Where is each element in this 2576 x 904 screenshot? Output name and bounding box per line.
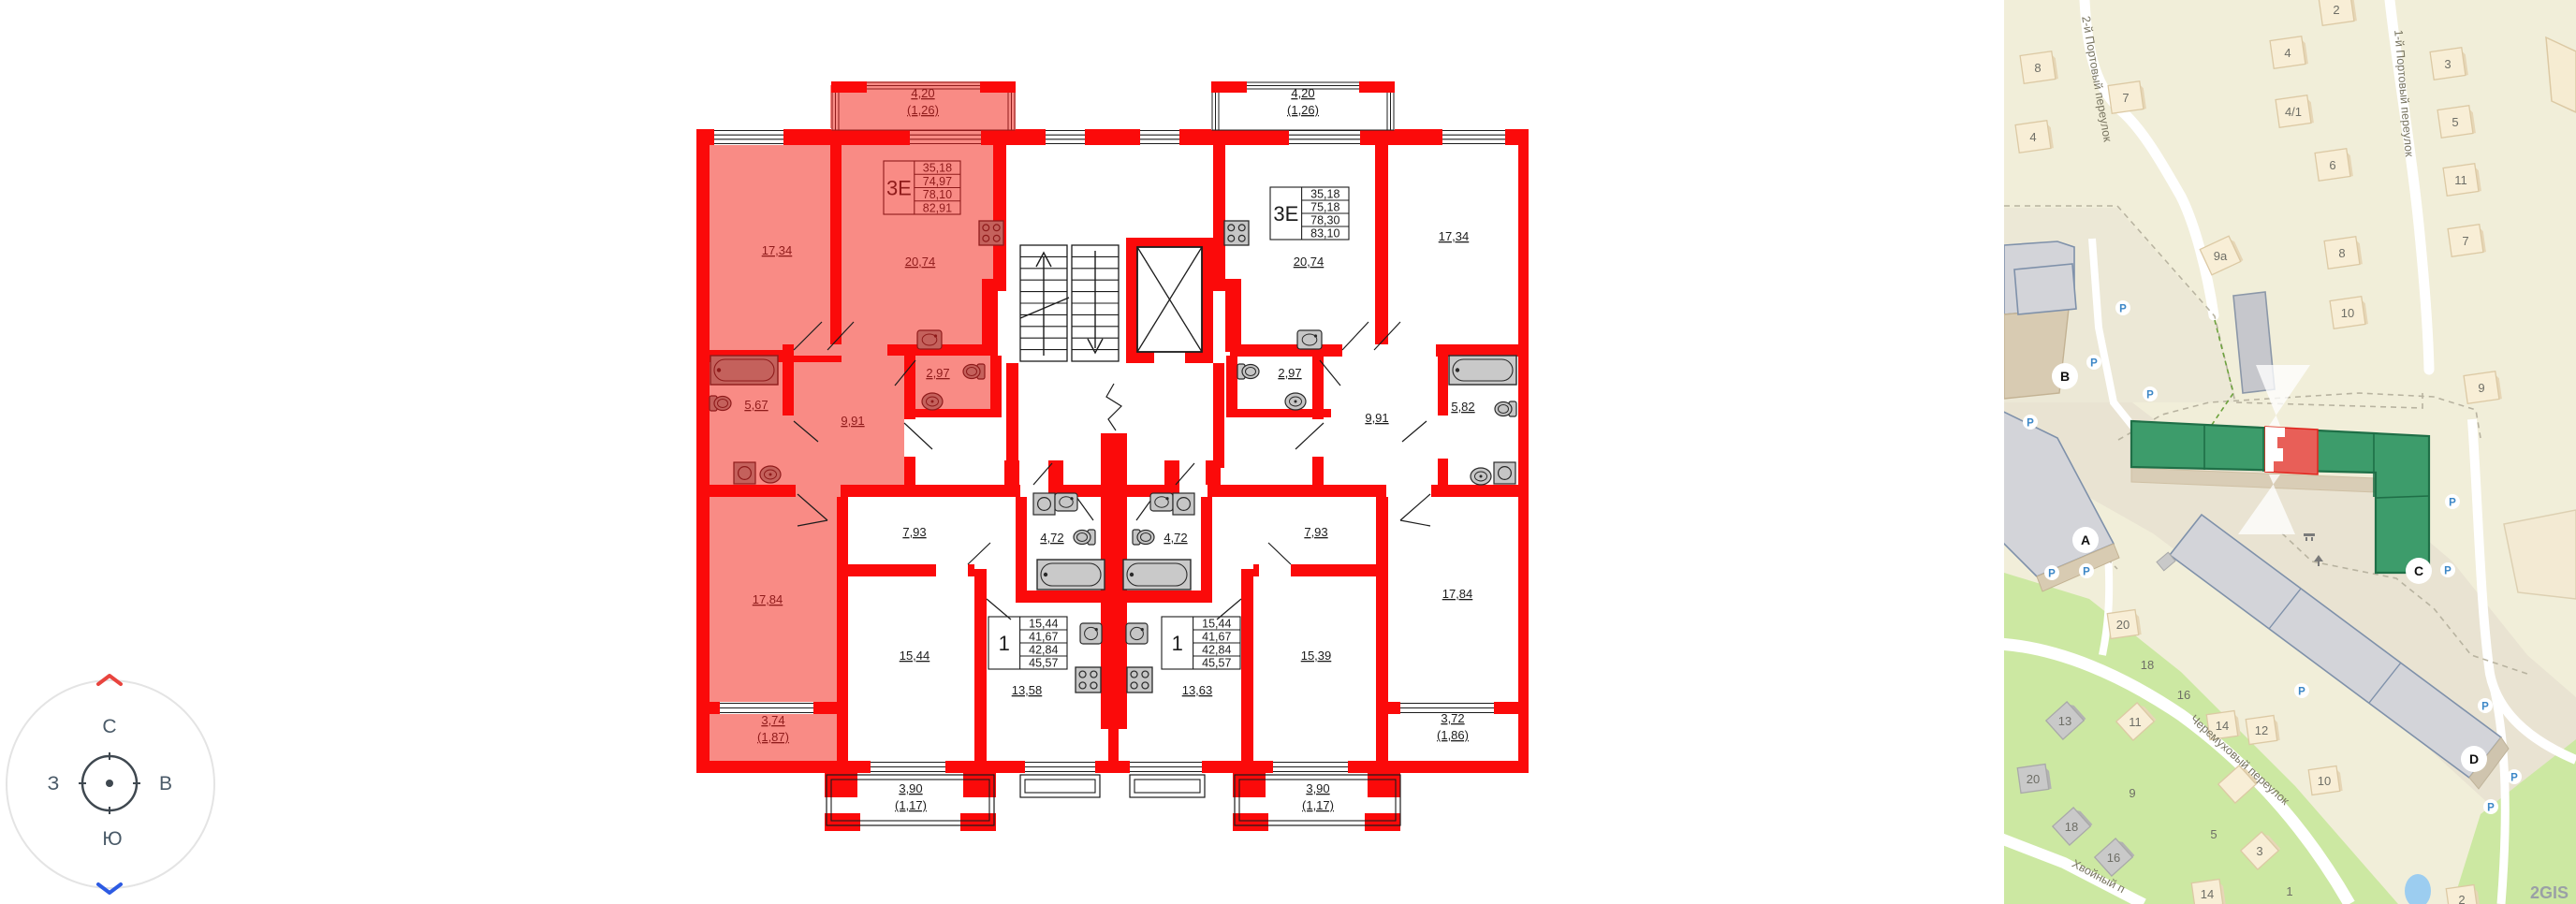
svg-text:D: D (2469, 751, 2479, 766)
svg-text:9: 9 (2478, 381, 2484, 395)
svg-text:82,91: 82,91 (923, 201, 952, 214)
svg-text:P: P (2487, 803, 2495, 814)
svg-text:4: 4 (2029, 130, 2036, 144)
svg-text:P: P (2119, 304, 2127, 315)
svg-text:P: P (2510, 773, 2518, 784)
svg-text:A: A (2081, 532, 2090, 547)
svg-text:P: P (2481, 702, 2489, 713)
svg-text:1: 1 (1172, 632, 1183, 655)
svg-text:18: 18 (2141, 658, 2154, 672)
svg-text:4,20: 4,20 (911, 86, 934, 100)
svg-text:P: P (2298, 687, 2305, 698)
svg-text:15,44: 15,44 (1202, 618, 1231, 631)
svg-text:4,72: 4,72 (1164, 531, 1187, 545)
svg-text:Ю: Ю (102, 828, 122, 850)
svg-text:11: 11 (2129, 715, 2142, 729)
svg-text:4,72: 4,72 (1040, 531, 1063, 545)
svg-text:3,72: 3,72 (1441, 711, 1464, 725)
svg-text:5,67: 5,67 (744, 398, 768, 412)
svg-text:P: P (2083, 567, 2090, 578)
svg-text:35,18: 35,18 (923, 162, 952, 175)
svg-text:5,82: 5,82 (1451, 400, 1474, 414)
svg-text:2,97: 2,97 (926, 366, 949, 380)
svg-text:3: 3 (2444, 57, 2451, 71)
svg-text:2GIS: 2GIS (2530, 883, 2569, 902)
svg-text:11: 11 (2454, 173, 2467, 187)
svg-text:4/1: 4/1 (2285, 105, 2302, 119)
svg-text:(1,17): (1,17) (895, 798, 927, 812)
svg-text:75,18: 75,18 (1310, 201, 1339, 214)
svg-text:3Е: 3Е (1273, 202, 1298, 226)
svg-text:20,74: 20,74 (1294, 255, 1325, 269)
svg-text:B: B (2060, 369, 2070, 384)
svg-text:4: 4 (2284, 46, 2291, 60)
svg-text:P: P (2146, 390, 2154, 401)
svg-text:15,44: 15,44 (900, 649, 930, 663)
svg-text:17,84: 17,84 (1442, 587, 1473, 601)
svg-text:10: 10 (2318, 774, 2331, 788)
svg-text:17,34: 17,34 (1439, 229, 1470, 243)
svg-text:(1,86): (1,86) (1437, 728, 1469, 742)
svg-text:8: 8 (2338, 246, 2345, 260)
svg-text:16: 16 (2107, 851, 2120, 865)
svg-text:(1,87): (1,87) (757, 730, 789, 744)
svg-text:20: 20 (2027, 772, 2040, 786)
svg-text:20: 20 (2116, 618, 2130, 632)
svg-text:41,67: 41,67 (1202, 631, 1231, 644)
svg-text:16: 16 (2177, 688, 2190, 702)
svg-text:9: 9 (2129, 786, 2135, 800)
svg-text:P: P (2449, 498, 2456, 509)
svg-text:4,20: 4,20 (1291, 86, 1314, 100)
svg-text:P: P (2048, 569, 2056, 580)
svg-text:14: 14 (2201, 887, 2214, 901)
svg-text:7: 7 (2122, 91, 2129, 105)
svg-text:13,58: 13,58 (1012, 683, 1043, 697)
svg-text:6: 6 (2329, 158, 2335, 172)
svg-text:9,91: 9,91 (841, 414, 864, 428)
svg-text:13: 13 (2058, 714, 2071, 728)
svg-text:9,91: 9,91 (1365, 411, 1388, 425)
svg-text:P: P (2090, 358, 2098, 370)
svg-text:20,74: 20,74 (905, 255, 936, 269)
svg-text:З: З (48, 773, 60, 795)
svg-text:8: 8 (2034, 61, 2041, 75)
svg-text:13,63: 13,63 (1182, 683, 1213, 697)
svg-text:5: 5 (2210, 827, 2217, 841)
svg-text:P: P (2444, 566, 2452, 577)
svg-text:42,84: 42,84 (1202, 644, 1231, 657)
svg-text:15,39: 15,39 (1301, 649, 1332, 663)
svg-text:12: 12 (2255, 723, 2268, 737)
svg-text:7,93: 7,93 (902, 525, 926, 539)
svg-text:1: 1 (999, 632, 1010, 655)
svg-text:45,57: 45,57 (1029, 657, 1058, 670)
svg-text:42,84: 42,84 (1029, 644, 1058, 657)
svg-text:9a: 9a (2214, 249, 2228, 263)
svg-text:2: 2 (2333, 3, 2339, 17)
svg-text:(1,26): (1,26) (907, 103, 939, 117)
svg-text:(1,26): (1,26) (1287, 103, 1319, 117)
svg-text:2: 2 (2458, 893, 2465, 904)
svg-text:3: 3 (2256, 844, 2262, 858)
svg-text:45,57: 45,57 (1202, 657, 1231, 670)
svg-text:В: В (159, 773, 172, 795)
svg-text:5: 5 (2452, 115, 2458, 129)
svg-text:18: 18 (2065, 820, 2078, 834)
svg-text:C: C (2414, 563, 2423, 578)
svg-text:7,93: 7,93 (1304, 525, 1327, 539)
svg-text:С: С (102, 716, 116, 737)
svg-text:P: P (2027, 418, 2034, 430)
svg-text:17,84: 17,84 (753, 592, 783, 606)
svg-text:1: 1 (2286, 884, 2292, 898)
svg-text:35,18: 35,18 (1310, 188, 1339, 201)
svg-text:2,97: 2,97 (1278, 366, 1301, 380)
svg-text:15,44: 15,44 (1029, 618, 1058, 631)
svg-text:17,34: 17,34 (762, 243, 793, 257)
svg-text:41,67: 41,67 (1029, 631, 1058, 644)
svg-text:3,90: 3,90 (899, 781, 922, 795)
svg-text:78,30: 78,30 (1310, 214, 1339, 227)
svg-text:3,74: 3,74 (761, 713, 784, 727)
svg-text:(1,17): (1,17) (1302, 798, 1334, 812)
svg-text:3,90: 3,90 (1306, 781, 1329, 795)
svg-text:7: 7 (2462, 234, 2468, 248)
svg-text:3Е: 3Е (886, 177, 912, 200)
svg-text:10: 10 (2341, 306, 2354, 320)
svg-text:83,10: 83,10 (1310, 227, 1339, 241)
svg-text:78,10: 78,10 (923, 188, 952, 201)
svg-text:74,97: 74,97 (923, 175, 952, 188)
